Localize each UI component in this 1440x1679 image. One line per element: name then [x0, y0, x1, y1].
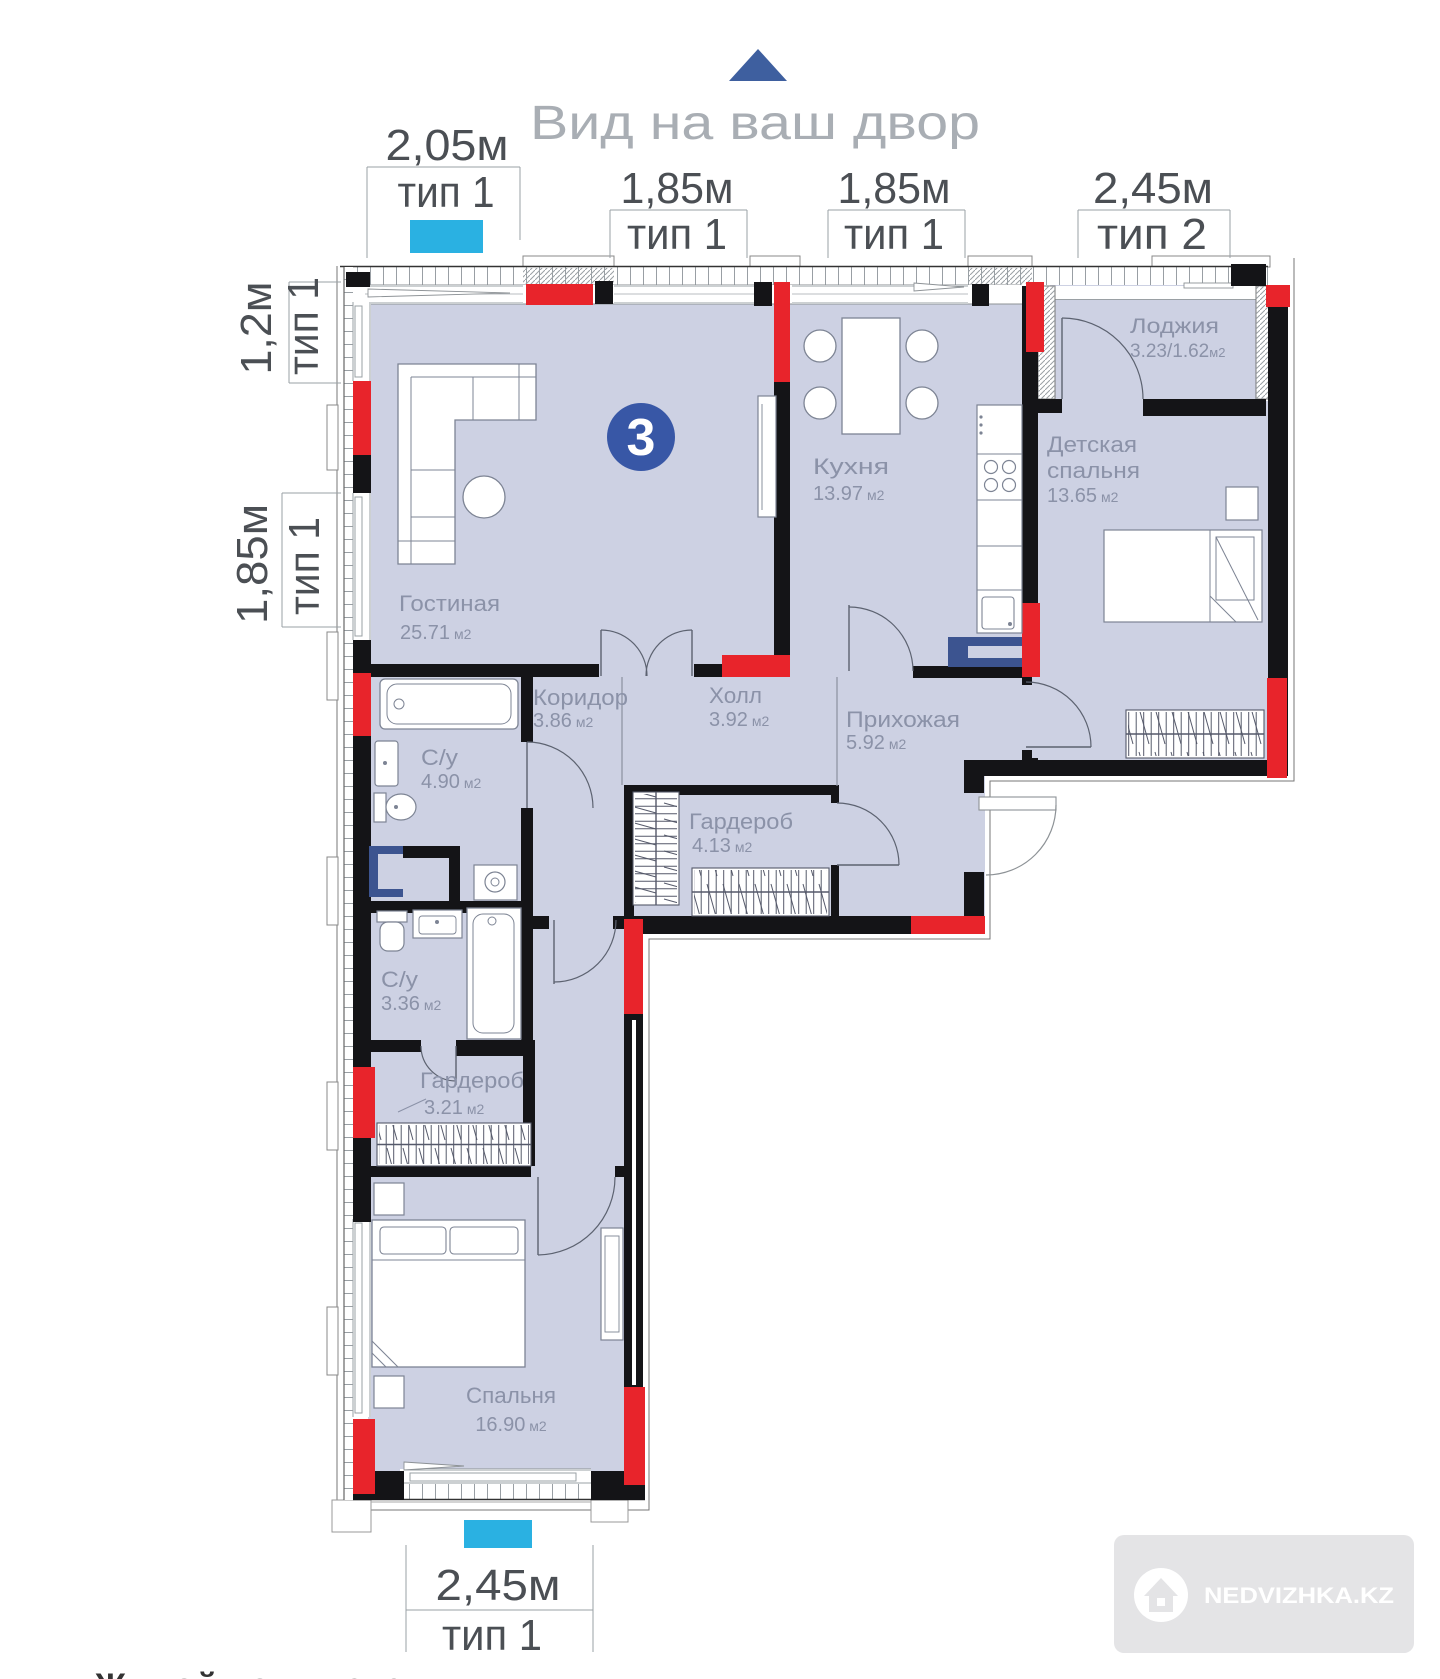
svg-text:3.21 м2: 3.21 м2	[424, 1097, 484, 1119]
svg-text:Детская: Детская	[1047, 432, 1137, 457]
svg-text:NEDVIZHKA.KZ: NEDVIZHKA.KZ	[1204, 1583, 1394, 1608]
svg-text:1,2м: 1,2м	[232, 282, 281, 375]
svg-text:Кухня: Кухня	[813, 454, 889, 479]
svg-text:3.92 м2: 3.92 м2	[709, 709, 769, 731]
svg-text:16.90 м2: 16.90 м2	[475, 1414, 547, 1436]
svg-text:3.86 м2: 3.86 м2	[533, 710, 593, 732]
svg-text:С/у: С/у	[421, 745, 458, 770]
svg-text:3.36 м2: 3.36 м2	[381, 993, 441, 1015]
svg-text:2,45м: 2,45м	[1093, 164, 1213, 213]
svg-text:4.90 м2: 4.90 м2	[421, 771, 481, 793]
svg-text:С/у: С/у	[381, 967, 418, 992]
svg-text:тип 1: тип 1	[280, 517, 329, 615]
svg-text:Жилой комплекс: Жилой комплекс	[94, 1667, 405, 1679]
svg-text:3: 3	[627, 409, 656, 467]
svg-text:Прихожая: Прихожая	[846, 707, 960, 732]
svg-text:1,85м: 1,85м	[621, 164, 734, 213]
svg-text:тип 2: тип 2	[1097, 210, 1207, 259]
svg-text:спальня: спальня	[1047, 458, 1140, 483]
svg-text:13.97 м2: 13.97 м2	[813, 483, 885, 505]
svg-text:3.23/1.62м2: 3.23/1.62м2	[1130, 341, 1225, 362]
svg-text:1,85м: 1,85м	[838, 164, 951, 213]
svg-text:Коридор: Коридор	[533, 685, 628, 710]
svg-text:Вид на ваш двор: Вид на ваш двор	[530, 97, 980, 150]
svg-text:Спальня: Спальня	[466, 1383, 556, 1408]
svg-text:Лоджия: Лоджия	[1130, 315, 1219, 338]
svg-text:тип 1: тип 1	[279, 277, 328, 375]
svg-text:4.13 м2: 4.13 м2	[692, 835, 752, 857]
svg-text:Гостиная: Гостиная	[399, 591, 500, 616]
svg-text:25.71 м2: 25.71 м2	[400, 622, 472, 644]
svg-text:тип 1: тип 1	[442, 1611, 542, 1660]
svg-text:Холл: Холл	[709, 683, 762, 708]
svg-text:тип 1: тип 1	[844, 210, 944, 259]
svg-text:13.65 м2: 13.65 м2	[1047, 485, 1119, 507]
svg-text:тип 1: тип 1	[627, 210, 727, 259]
svg-text:Гардероб: Гардероб	[420, 1068, 524, 1093]
svg-text:Гардероб: Гардероб	[689, 809, 793, 834]
svg-text:5.92 м2: 5.92 м2	[846, 732, 906, 754]
svg-text:тип 1: тип 1	[398, 168, 495, 217]
svg-text:2,45м: 2,45м	[436, 1561, 561, 1610]
svg-text:1,85м: 1,85м	[228, 504, 277, 624]
svg-text:2,05м: 2,05м	[386, 121, 509, 170]
